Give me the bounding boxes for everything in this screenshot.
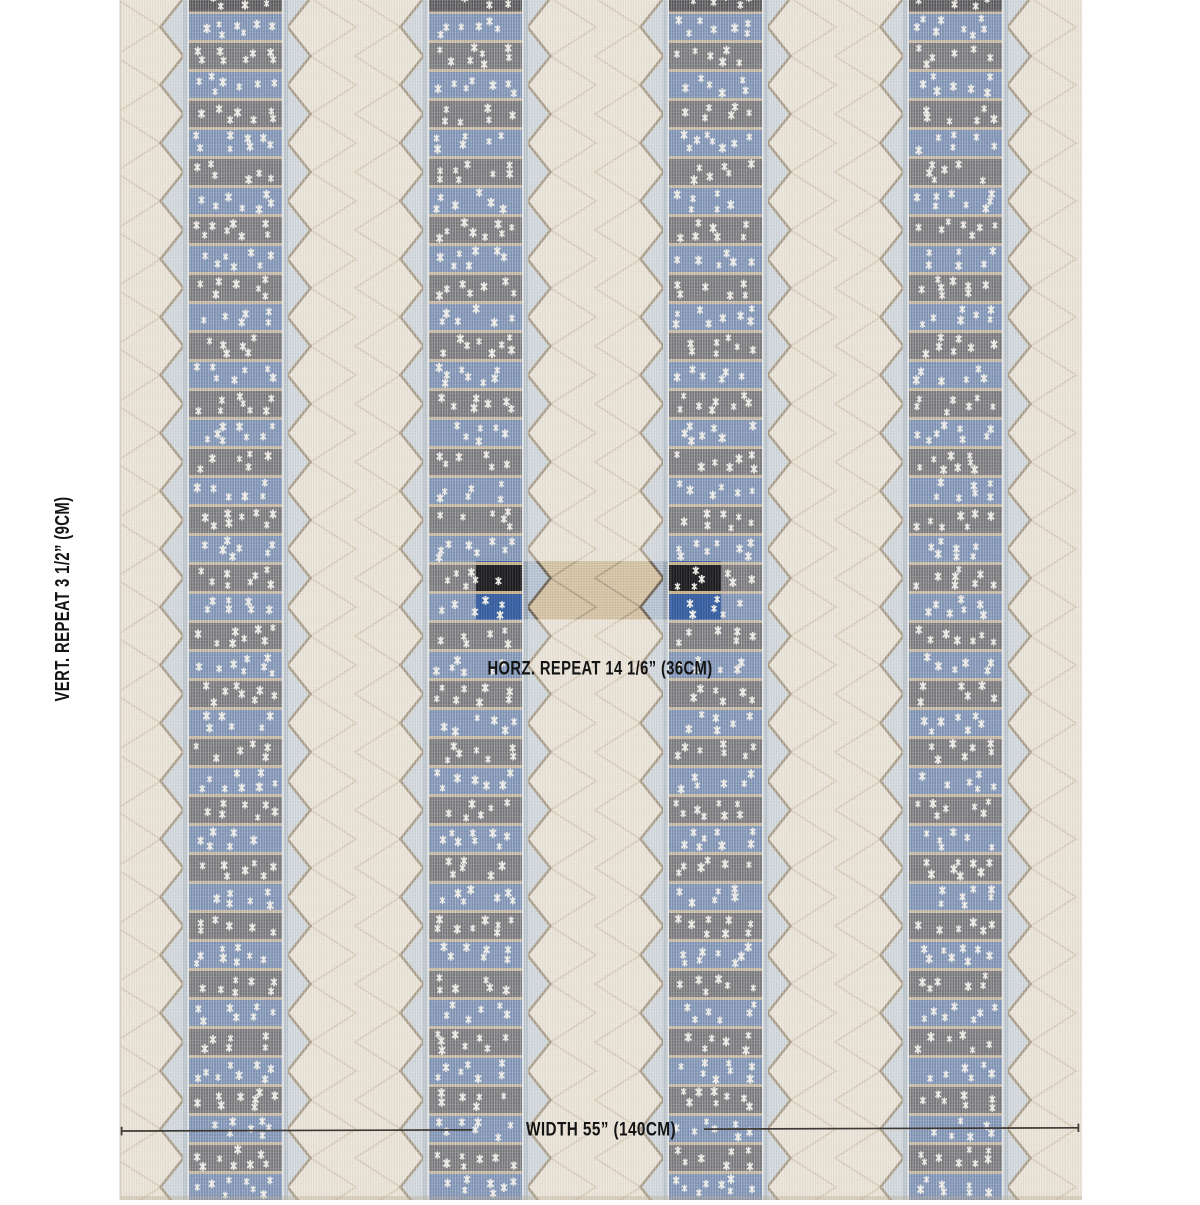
svg-text:HORZ. REPEAT 14 1/6” (36CM): HORZ. REPEAT 14 1/6” (36CM) xyxy=(488,659,713,680)
svg-text:WIDTH 55” (140CM): WIDTH 55” (140CM) xyxy=(526,1120,676,1141)
svg-text:VERT. REPEAT 3 1/2” (9CM): VERT. REPEAT 3 1/2” (9CM) xyxy=(52,497,74,702)
